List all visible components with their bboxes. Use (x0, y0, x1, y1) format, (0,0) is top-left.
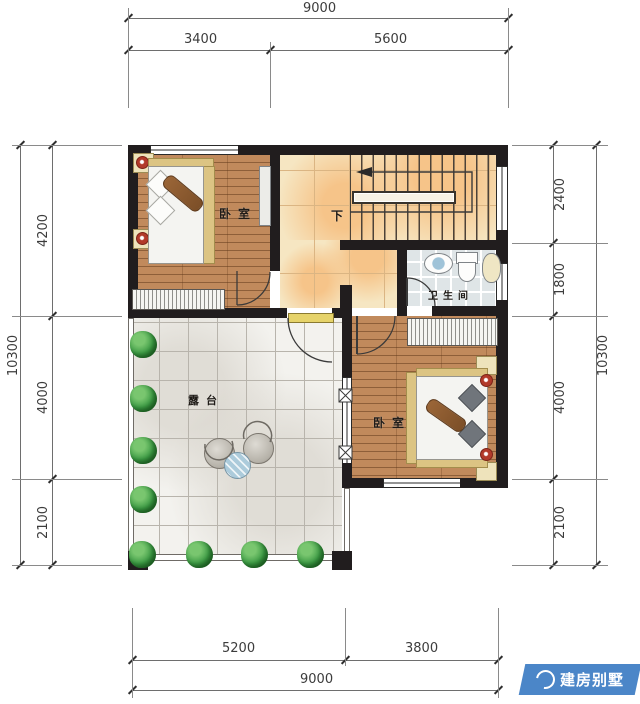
dim-bottom-total: 9000 (300, 672, 333, 687)
dim-right-b: 1800 (553, 263, 568, 296)
dim-left-total: 10300 (6, 335, 21, 376)
dim-right-total: 10300 (596, 335, 611, 376)
dim-left-b: 4000 (36, 381, 51, 414)
plan-linework (0, 0, 640, 704)
dim-left-a: 4200 (36, 214, 51, 247)
brand-name: 建房别墅 (560, 669, 624, 690)
brand-icon (532, 666, 558, 692)
dim-bottom-a: 5200 (222, 641, 255, 656)
dim-right-a: 2400 (553, 178, 568, 211)
dim-top-a: 3400 (184, 32, 217, 47)
dim-left-c: 2100 (36, 506, 51, 539)
dim-right-c: 4000 (553, 381, 568, 414)
dim-top-total: 9000 (303, 1, 336, 16)
floor-plan-canvas: 下 卧室 卧室 卫生间 露台 (0, 0, 640, 704)
dim-right-d: 2100 (553, 506, 568, 539)
brand-badge: 建房别墅 (519, 664, 640, 695)
dim-top-b: 5600 (374, 32, 407, 47)
dim-bottom-b: 3800 (405, 641, 438, 656)
